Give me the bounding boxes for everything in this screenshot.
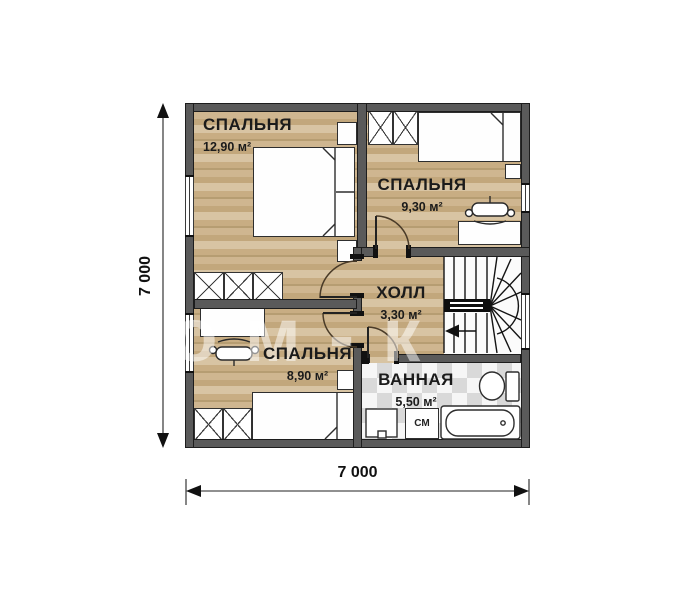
wall-bedrooms-left	[194, 299, 357, 309]
washing-machine: СМ	[405, 408, 439, 439]
window	[185, 313, 194, 373]
single-bed	[252, 392, 355, 440]
room-name: СПАЛЬНЯ	[203, 116, 333, 133]
staircase-floor	[444, 257, 521, 354]
room-area: 3,30 м²	[362, 309, 440, 322]
room-label-bedroom-large: СПАЛЬНЯ 12,90 м²	[203, 116, 333, 154]
washing-machine-label: СМ	[414, 418, 429, 429]
room-area: 8,90 м²	[250, 370, 365, 383]
room-name: ХОЛЛ	[362, 284, 440, 301]
wardrobe-cell	[368, 110, 393, 145]
wardrobe-cell	[194, 408, 223, 441]
wall-right	[521, 103, 530, 448]
desk	[458, 221, 521, 245]
window	[521, 183, 530, 213]
room-label-bedroom-small: СПАЛЬНЯ 8,90 м²	[250, 345, 365, 383]
room-area: 9,30 м²	[363, 201, 481, 214]
dimension-label-horizontal: 7 000	[310, 464, 405, 482]
room-area: 5,50 м²	[368, 396, 464, 409]
room-label-hall: ХОЛЛ 3,30 м²	[362, 284, 440, 322]
desk	[200, 308, 265, 337]
wardrobe	[194, 408, 252, 441]
wall-hall-left-a	[353, 247, 362, 261]
window	[521, 293, 530, 350]
wardrobe-cell	[194, 272, 224, 302]
wall-bathroom-top	[396, 354, 521, 363]
room-name: ВАННАЯ	[368, 371, 464, 388]
dimension-line-vertical	[157, 103, 169, 448]
window	[185, 175, 194, 237]
wardrobe-cell	[253, 272, 283, 302]
wardrobe-cell	[393, 110, 418, 145]
room-label-bathroom: ВАННАЯ 5,50 м²	[368, 371, 464, 409]
wardrobe-cell	[223, 408, 252, 441]
wardrobe	[194, 272, 283, 302]
room-area: 12,90 м²	[203, 141, 333, 154]
dimension-line-horizontal	[186, 479, 529, 505]
room-name: СПАЛЬНЯ	[250, 345, 365, 362]
nightstand	[337, 122, 357, 145]
nightstand	[505, 164, 521, 179]
room-name: СПАЛЬНЯ	[363, 176, 481, 193]
double-bed	[253, 147, 355, 237]
single-bed	[418, 112, 521, 162]
wall-bedroom-hall	[407, 247, 530, 257]
room-label-bedroom-right: СПАЛЬНЯ 9,30 м²	[363, 176, 481, 214]
dimension-label-vertical: 7 000	[137, 246, 155, 306]
floor-plan-canvas: СМ	[0, 0, 690, 610]
wall-left	[185, 103, 194, 448]
wardrobe	[368, 110, 418, 145]
wardrobe-cell	[224, 272, 254, 302]
